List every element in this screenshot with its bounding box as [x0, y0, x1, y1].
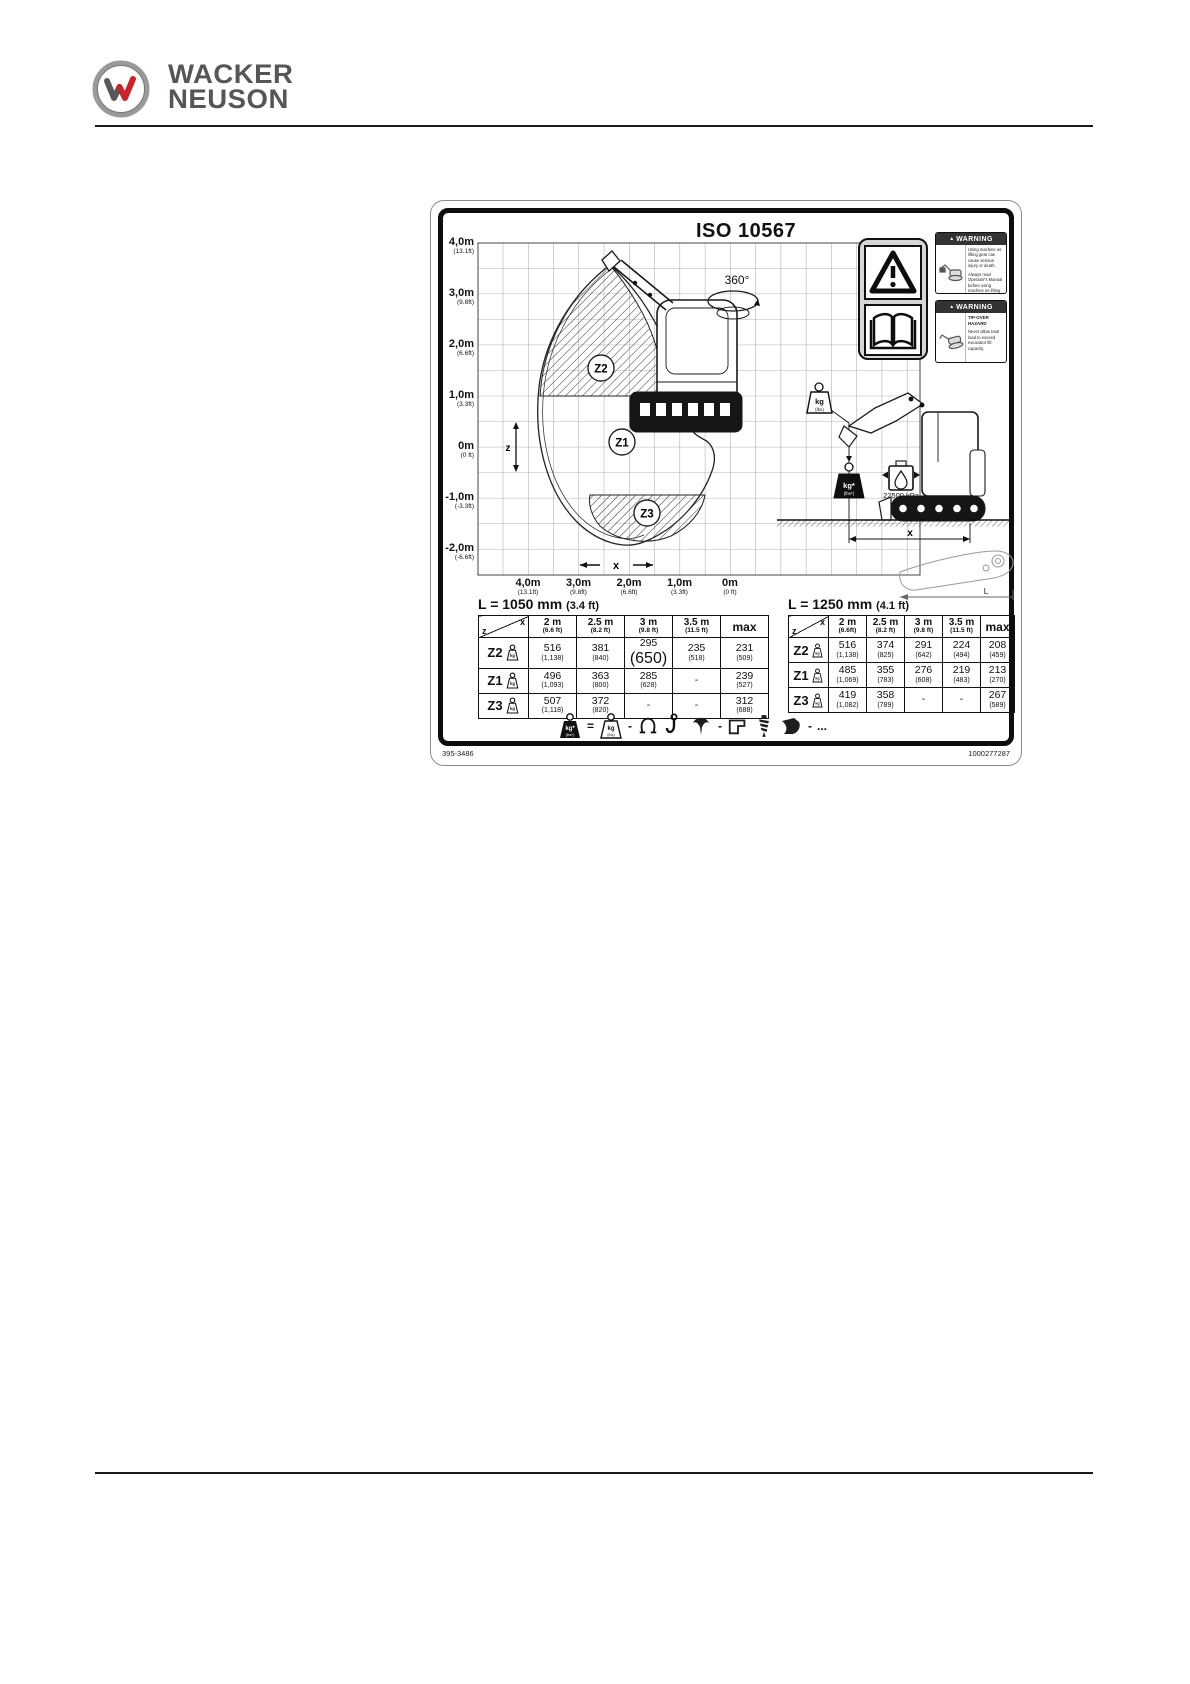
- x-axis-tick: 3,0m(9.8ft): [555, 578, 603, 597]
- svg-text:(lbs*): (lbs*): [566, 733, 576, 737]
- header-divider: [95, 125, 1093, 127]
- wacker-neuson-logo-icon: [92, 60, 150, 118]
- shackle-icon: [637, 714, 659, 738]
- svg-text:kg: kg: [510, 681, 515, 686]
- table-header-row: xz 2 m(6.6ft) 2.5 m(8.2 ft) 3 m(9.8 ft) …: [789, 616, 1015, 638]
- svg-text:kg*: kg*: [565, 726, 575, 732]
- table-title: L = 1050 mm (3.4 ft): [478, 596, 768, 612]
- svg-text:kg: kg: [815, 676, 819, 680]
- equals-sign: =: [587, 719, 594, 733]
- legend-outline-weight-icon: kg (lbs): [599, 713, 623, 739]
- lifting-hazard-pictogram-icon: [936, 245, 966, 293]
- zone-cell: Z1kg: [789, 663, 829, 688]
- load-equivalence-legend: kg* (lbs*) = kg (lbs) -: [558, 712, 930, 740]
- svg-text:kg: kg: [815, 651, 819, 655]
- legend-solid-weight-icon: kg* (lbs*): [558, 713, 582, 739]
- zone-cell: Z2kg: [479, 638, 529, 669]
- manual-page: WACKER NEUSON: [0, 0, 1190, 1684]
- warning-triangle-small-icon: ▲: [949, 237, 954, 242]
- x-axis-tick: 0m(0 ft): [706, 578, 754, 597]
- y-axis-tick: 0m(0 ft): [432, 441, 474, 460]
- bucket-icon: [779, 714, 803, 738]
- corner-cell: xz: [789, 616, 829, 638]
- table-row: Z2kg 516(1,138) 381(840) 295(650) 235(51…: [479, 638, 769, 669]
- warning-title: WARNING: [956, 236, 993, 243]
- warning-text: Using machine as lifting gear can cause …: [966, 245, 1006, 293]
- svg-text:kg: kg: [815, 701, 819, 705]
- weight-mini-icon: kg: [811, 643, 824, 658]
- load-table-1050: L = 1050 mm (3.4 ft) xz 2 m(6.6 ft) 2.5 …: [478, 596, 768, 719]
- warning-box-lifting: ▲ WARNING Using machine as liftin: [935, 232, 1007, 294]
- warning-text: TIP-OVER HAZARD Never allow total load t…: [966, 313, 1006, 362]
- table-row: Z1kg 485(1,069) 355(783) 276(608) 219(48…: [789, 663, 1015, 688]
- zone-cell: Z3kg: [479, 693, 529, 718]
- y-axis-tick: 2,0m(6.6ft): [432, 339, 474, 358]
- svg-text:kg: kg: [608, 726, 615, 732]
- dash-separator: -: [808, 719, 812, 733]
- load-table-1250: L = 1250 mm (4.1 ft) xz 2 m(6.6ft) 2.5 m…: [788, 596, 1014, 713]
- col-header-max: max: [721, 616, 769, 638]
- table-title: L = 1250 mm (4.1 ft): [788, 596, 1014, 612]
- warning-title: WARNING: [956, 304, 993, 311]
- ellipsis: ...: [817, 719, 827, 733]
- table-header-row: xz 2 m(6.6 ft) 2.5 m(8.2 ft) 3 m(9.8 ft)…: [479, 616, 769, 638]
- weight-mini-icon: kg: [505, 697, 520, 714]
- label-document-number: 1000277287: [968, 749, 1010, 758]
- col-header: 2.5 m(8.2 ft): [577, 616, 625, 638]
- y-axis-tick: -2,0m(-6.6ft): [432, 543, 474, 562]
- warning-header: ▲ WARNING: [936, 301, 1006, 313]
- hook-icon: [664, 713, 684, 739]
- x-axis-tick: 4,0m(13.1ft): [504, 578, 552, 597]
- zone-cell: Z1kg: [479, 668, 529, 693]
- read-manual-book-icon: [864, 304, 922, 356]
- safety-pictogram-panel: [858, 238, 928, 360]
- dash-separator: -: [718, 719, 722, 733]
- warning-box-tipover: ▲ WARNING TIP-OVER HAZARD Never allow: [935, 300, 1007, 363]
- auger-icon: [754, 713, 774, 739]
- col-header: 2.5 m(8.2 ft): [867, 616, 905, 638]
- col-header: 3.5 m(11.5 ft): [673, 616, 721, 638]
- coupler-icon: [727, 714, 749, 738]
- table-row: Z3kg 419(1,082) 358(789) - - 267(589): [789, 688, 1015, 713]
- weight-mini-icon: kg: [811, 668, 824, 683]
- col-header: 3 m(9.8 ft): [625, 616, 673, 638]
- standard-title: ISO 10567: [678, 220, 814, 243]
- x-axis-tick: 1,0m(3.3ft): [656, 578, 704, 597]
- col-header: 2 m(6.6ft): [829, 616, 867, 638]
- y-axis-tick: 4,0m(13.1ft): [432, 237, 474, 256]
- lift-capacity-label: Z2 Z1 Z3 x z: [430, 200, 1022, 766]
- grab-icon: [689, 714, 713, 738]
- brand-wordmark: WACKER NEUSON: [168, 62, 293, 112]
- col-header-max: max: [981, 616, 1015, 638]
- tipover-hazard-pictogram-icon: [936, 313, 966, 362]
- y-axis-tick: -1,0m(-3.3ft): [432, 492, 474, 511]
- svg-text:(lbs): (lbs): [607, 733, 615, 737]
- col-header: 2 m(6.6 ft): [529, 616, 577, 638]
- svg-text:kg: kg: [510, 653, 515, 658]
- footer-divider: [95, 1472, 1093, 1474]
- brand-header: WACKER NEUSON: [92, 58, 412, 122]
- weight-mini-icon: kg: [505, 644, 520, 661]
- rotation-label: 360°: [711, 273, 763, 287]
- weight-mini-icon: kg: [505, 672, 520, 689]
- brand-line-2: NEUSON: [168, 87, 293, 112]
- table-row: Z1kg 496(1,093) 363(800) 285(628) - 239(…: [479, 668, 769, 693]
- warning-triangle-small-icon: ▲: [949, 305, 954, 310]
- col-header: 3.5 m(11.5 ft): [943, 616, 981, 638]
- label-part-number: 395-3486: [442, 749, 474, 758]
- zone-cell: Z3kg: [789, 688, 829, 713]
- dash-separator: -: [628, 719, 632, 733]
- zone-cell: Z2kg: [789, 638, 829, 663]
- y-axis-tick: 1,0m(3.3ft): [432, 390, 474, 409]
- x-axis-tick: 2,0m(6.6ft): [605, 578, 653, 597]
- col-header: 3 m(9.8 ft): [905, 616, 943, 638]
- warning-triangle-icon: [864, 245, 922, 300]
- table-row: Z2kg 516(1,138) 374(825) 291(642) 224(49…: [789, 638, 1015, 663]
- svg-text:kg: kg: [510, 706, 515, 711]
- weight-mini-icon: kg: [811, 693, 824, 708]
- corner-cell: xz: [479, 616, 529, 638]
- y-axis-tick: 3,0m(9.8ft): [432, 288, 474, 307]
- warning-header: ▲ WARNING: [936, 233, 1006, 245]
